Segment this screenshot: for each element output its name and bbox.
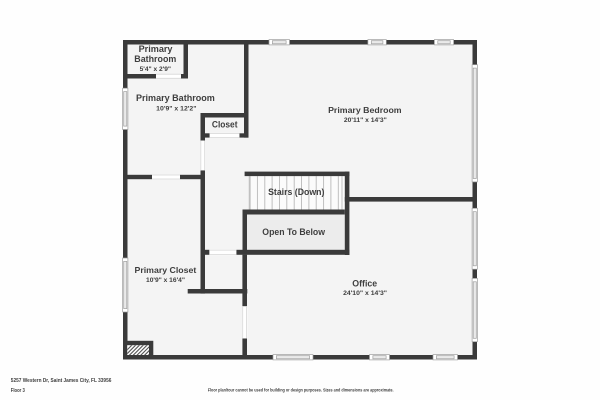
- svg-text:Primary Bedroom: Primary Bedroom: [328, 105, 402, 115]
- svg-text:Floor plan/tour cannot be used: Floor plan/tour cannot be used for build…: [208, 387, 394, 392]
- svg-text:Open To Below: Open To Below: [262, 227, 325, 237]
- svg-text:Floor 3: Floor 3: [11, 388, 25, 394]
- svg-text:Primary: Primary: [139, 44, 174, 54]
- svg-text:10'9" x 16'4": 10'9" x 16'4": [146, 277, 185, 284]
- svg-text:Primary Bathroom: Primary Bathroom: [136, 93, 215, 103]
- svg-text:24'10" x 14'3": 24'10" x 14'3": [343, 290, 387, 297]
- svg-text:10'9" x 12'2": 10'9" x 12'2": [156, 105, 196, 112]
- svg-text:Office: Office: [352, 278, 377, 288]
- svg-text:Bathroom: Bathroom: [134, 54, 176, 64]
- svg-text:Primary Closet: Primary Closet: [135, 265, 197, 275]
- svg-text:5257 Western Dr, Saint James C: 5257 Western Dr, Saint James City, FL 33…: [11, 378, 112, 384]
- svg-text:5'4" x 2'9": 5'4" x 2'9": [140, 66, 171, 73]
- svg-text:Stairs (Down): Stairs (Down): [268, 187, 324, 197]
- svg-text:20'11" x 14'3": 20'11" x 14'3": [344, 117, 387, 124]
- svg-text:Closet: Closet: [212, 119, 238, 129]
